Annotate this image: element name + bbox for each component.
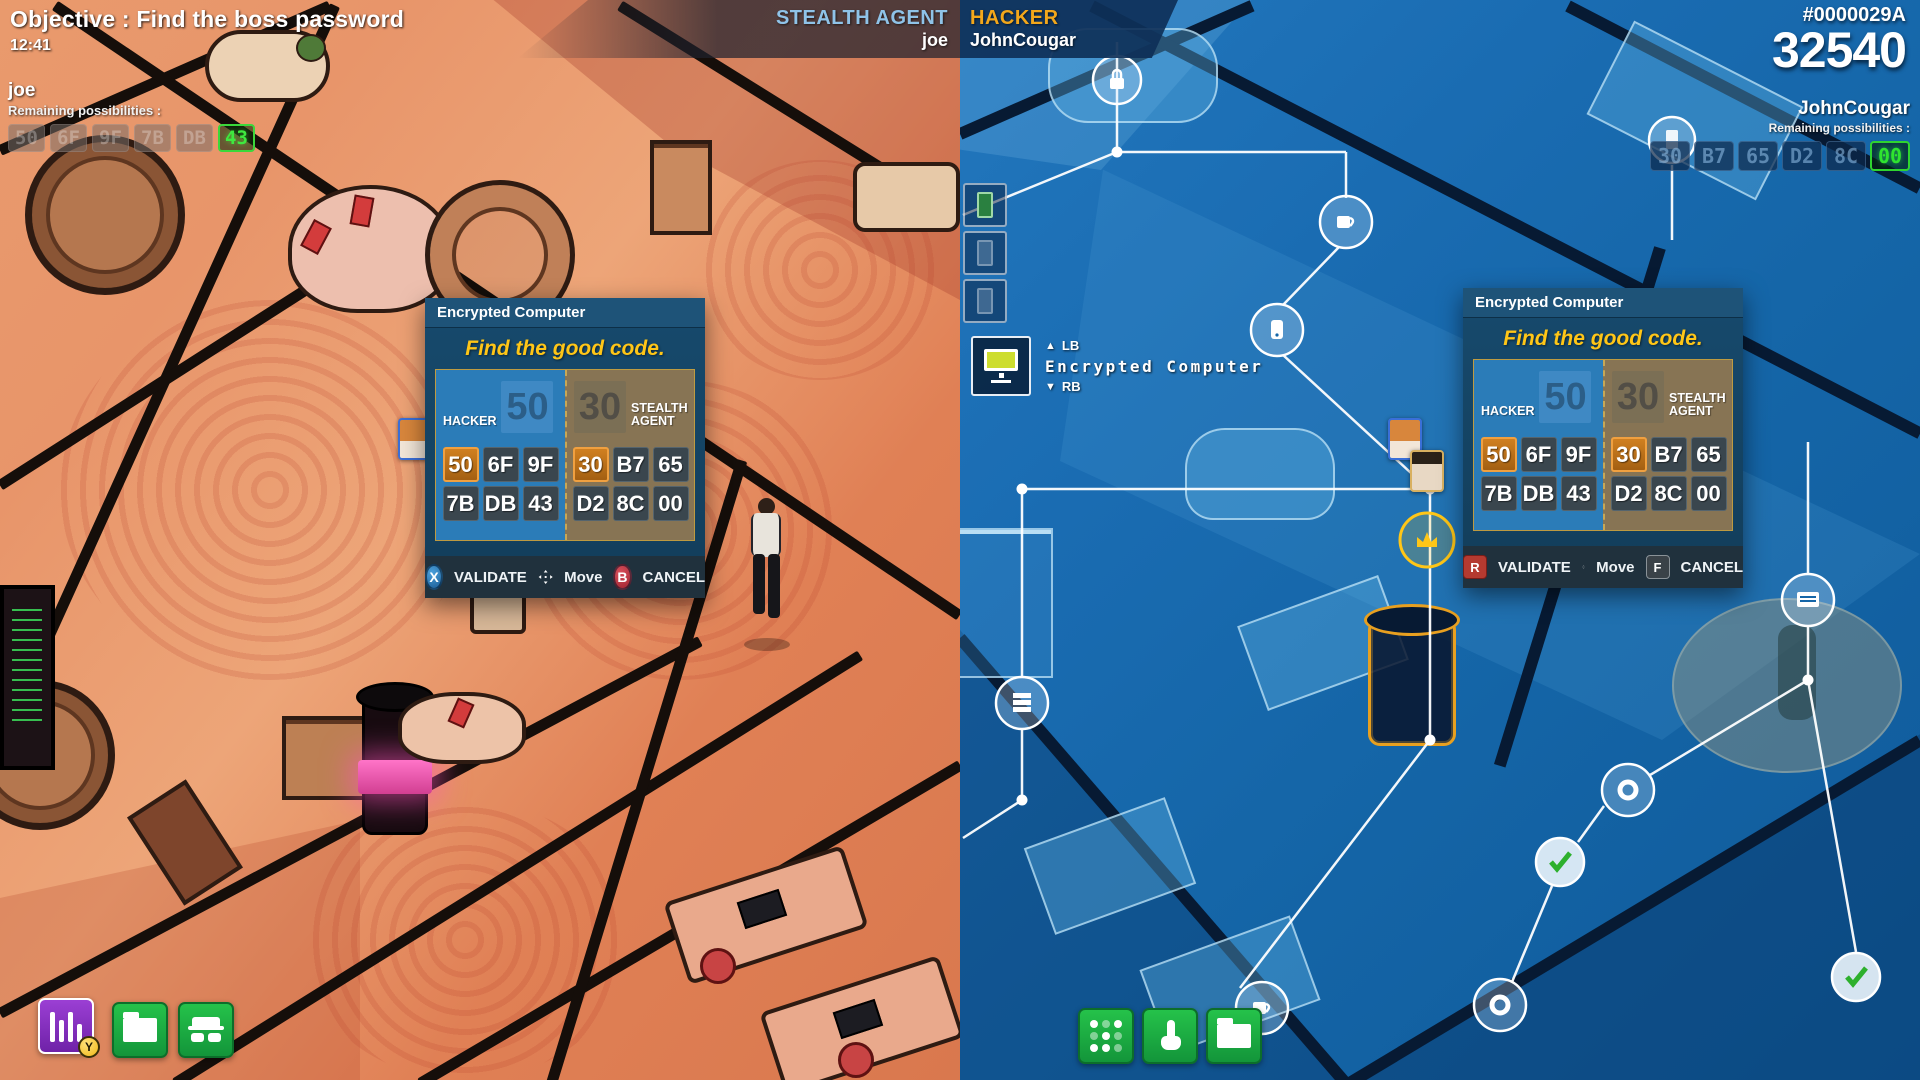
folder-icon xyxy=(1217,1024,1251,1048)
code-cell[interactable]: 6F xyxy=(483,447,519,482)
validate-button[interactable]: VALIDATE xyxy=(1498,559,1571,576)
hacker-selected-big: 50 xyxy=(501,381,553,433)
gadget-icon xyxy=(50,1010,82,1042)
desk xyxy=(853,162,960,232)
hacker-role-label: HACKER xyxy=(970,7,1059,30)
inventory-button[interactable] xyxy=(112,1002,168,1058)
code-box: 9F xyxy=(92,124,129,152)
code-cell[interactable]: 8C xyxy=(613,486,649,521)
node-lock[interactable] xyxy=(1093,56,1141,104)
keyboard-f-key-icon[interactable]: F xyxy=(1646,555,1670,579)
stealth-column-label: STEALTH AGENT xyxy=(631,402,687,434)
agent-disguise-icon xyxy=(188,1017,224,1043)
code-cell[interactable]: DB xyxy=(1521,476,1557,511)
code-cell-selected[interactable]: 30 xyxy=(573,447,609,482)
computer-icon[interactable] xyxy=(971,336,1031,396)
dpad-move-icon xyxy=(538,565,553,589)
code-cell[interactable]: 00 xyxy=(653,486,689,521)
dialog-title: Encrypted Computer xyxy=(425,298,705,328)
code-cell-selected[interactable]: 50 xyxy=(443,447,479,482)
node-documents[interactable] xyxy=(996,677,1048,729)
code-box: D2 xyxy=(1782,141,1822,171)
rb-key-label: RB xyxy=(1062,379,1081,394)
agent-hud-label: Remaining possibilities : xyxy=(8,103,255,118)
dpad-move-icon xyxy=(1582,555,1585,579)
pattern-tool-button[interactable] xyxy=(1078,1008,1134,1064)
device-slot[interactable] xyxy=(963,183,1007,227)
arrow-down-icon: ▼ xyxy=(1045,381,1056,393)
code-cell[interactable]: 9F xyxy=(523,447,559,482)
hacker-banner: HACKER JohnCougar xyxy=(960,0,1178,58)
dialog-subtitle: Find the good code. xyxy=(1463,318,1743,359)
dialog-button-bar: X VALIDATE Move B CANCEL xyxy=(425,556,705,598)
agent-hud-name: joe xyxy=(8,80,255,102)
code-cell[interactable]: 65 xyxy=(1691,437,1727,472)
encrypted-computer-dialog-hacker: Encrypted Computer Find the good code. H… xyxy=(1463,288,1743,588)
move-label: Move xyxy=(1596,559,1634,576)
dialog-title: Encrypted Computer xyxy=(1463,288,1743,318)
code-cell[interactable]: 7B xyxy=(443,486,479,521)
hacker-player-name: JohnCougar xyxy=(970,30,1076,51)
game-screen: ▲ LB Encrypted Computer ▼ RB Objective :… xyxy=(0,0,1920,1080)
stealth-code-column: 30 STEALTH AGENT 30 B7 65 D2 8C 00 xyxy=(565,370,694,540)
rug xyxy=(60,300,480,680)
code-cell-selected[interactable]: 50 xyxy=(1481,437,1517,472)
touch-icon xyxy=(1157,1020,1183,1052)
code-cell[interactable]: B7 xyxy=(613,447,649,482)
timer: 12:41 xyxy=(10,37,51,55)
solved-code-box: 00 xyxy=(1870,141,1910,171)
prev-device-prompt[interactable]: ▲ LB xyxy=(1045,338,1263,353)
code-box: 6F xyxy=(50,124,87,152)
arrow-up-icon: ▲ xyxy=(1045,340,1056,352)
keyboard-r-key-icon[interactable]: R xyxy=(1463,555,1487,579)
code-cell[interactable]: 43 xyxy=(523,486,559,521)
node-encrypted-computer[interactable] xyxy=(1400,513,1454,567)
hacker-selected-big: 50 xyxy=(1539,371,1591,423)
hacker-hud-name: JohnCougar xyxy=(1650,98,1910,120)
hacker-remaining-panel: JohnCougar Remaining possibilities : 30 … xyxy=(1650,98,1910,171)
code-panel: HACKER 50 50 6F 9F 7B DB 43 30 STEALTH A… xyxy=(1473,359,1733,531)
score-value: 32540 xyxy=(1772,27,1906,75)
code-cell[interactable]: B7 xyxy=(1651,437,1687,472)
interact-tool-button[interactable] xyxy=(1142,1008,1198,1064)
stealth-player-name: joe xyxy=(922,30,948,51)
agent-ability-button[interactable] xyxy=(178,1002,234,1058)
objective-text: Objective : Find the boss password xyxy=(10,6,404,33)
code-cell[interactable]: 00 xyxy=(1691,476,1727,511)
gadget-button[interactable]: Y xyxy=(38,998,94,1054)
code-cell[interactable]: 8C xyxy=(1651,476,1687,511)
chair xyxy=(700,948,736,984)
stealth-selected-big: 30 xyxy=(1612,371,1664,423)
score-block: #0000029A 32540 xyxy=(1772,4,1906,75)
code-cell[interactable]: 65 xyxy=(653,447,689,482)
server-cabinet xyxy=(0,585,55,770)
code-cell[interactable]: 7B xyxy=(1481,476,1517,511)
code-cell[interactable]: 6F xyxy=(1521,437,1557,472)
stealth-column-label: STEALTH AGENT xyxy=(1669,392,1725,424)
boss-character xyxy=(742,498,792,648)
device-slot[interactable] xyxy=(963,231,1007,275)
code-box: 8C xyxy=(1826,141,1866,171)
rug xyxy=(300,800,630,1080)
plant xyxy=(296,34,326,62)
code-box: 7B xyxy=(134,124,171,152)
node-checked[interactable] xyxy=(1536,838,1584,886)
node-checked[interactable] xyxy=(1832,953,1880,1001)
agent-remaining-panel: joe Remaining possibilities : 50 6F 9F 7… xyxy=(8,80,255,152)
files-tool-button[interactable] xyxy=(1206,1008,1262,1064)
device-slot[interactable] xyxy=(963,279,1007,323)
desk xyxy=(663,845,868,985)
node-keyboard[interactable] xyxy=(1782,574,1834,626)
hacker-hud-label: Remaining possibilities : xyxy=(1650,121,1910,135)
folder-icon xyxy=(123,1018,157,1042)
gamepad-y-badge: Y xyxy=(78,1036,100,1058)
code-cell[interactable]: D2 xyxy=(573,486,609,521)
agent-position-avatar xyxy=(1410,450,1444,492)
gamepad-b-icon[interactable]: B xyxy=(613,564,631,590)
hacker-code-column: HACKER 50 50 6F 9F 7B DB 43 xyxy=(1474,360,1603,530)
stealth-banner: STEALTH AGENT joe xyxy=(518,0,960,58)
stealth-code-column: 30 STEALTH AGENT 30 B7 65 D2 8C 00 xyxy=(1603,360,1732,530)
code-cell[interactable]: 43 xyxy=(1561,476,1597,511)
code-box: DB xyxy=(176,124,213,152)
node-coffee[interactable] xyxy=(1320,196,1372,248)
validate-button[interactable]: VALIDATE xyxy=(454,569,527,586)
code-cell[interactable]: D2 xyxy=(1611,476,1647,511)
code-box: 30 xyxy=(1650,141,1690,171)
node-donut[interactable] xyxy=(1602,764,1654,816)
stealth-role-label: STEALTH AGENT xyxy=(776,7,948,30)
code-box: 50 xyxy=(8,124,45,152)
round-bookshelf xyxy=(25,135,185,295)
lb-key-label: LB xyxy=(1062,338,1079,353)
hacker-column-label: HACKER xyxy=(443,415,496,433)
hacker-column-label: HACKER xyxy=(1481,405,1534,423)
stealth-selected-big: 30 xyxy=(574,381,626,433)
dialog-button-bar: R VALIDATE Move F CANCEL xyxy=(1463,546,1743,588)
code-box: B7 xyxy=(1694,141,1734,171)
cancel-button[interactable]: CANCEL xyxy=(643,569,706,586)
dots-grid-icon xyxy=(1090,1020,1122,1052)
gamepad-x-icon[interactable]: X xyxy=(425,564,443,590)
device-name: Encrypted Computer xyxy=(1045,357,1263,376)
solved-code-box: 43 xyxy=(218,124,255,152)
code-cell-selected[interactable]: 30 xyxy=(1611,437,1647,472)
device-tooltip: ▲ LB Encrypted Computer ▼ RB xyxy=(971,336,1263,396)
shelf xyxy=(650,140,712,235)
next-device-prompt[interactable]: ▼ RB xyxy=(1045,379,1263,394)
cancel-button[interactable]: CANCEL xyxy=(1681,559,1744,576)
code-cell[interactable]: 9F xyxy=(1561,437,1597,472)
move-label: Move xyxy=(564,569,602,586)
code-panel: HACKER 50 50 6F 9F 7B DB 43 30 STEALTH A… xyxy=(435,369,695,541)
encrypted-computer-dialog-agent: Encrypted Computer Find the good code. H… xyxy=(425,298,705,598)
code-box: 65 xyxy=(1738,141,1778,171)
server-screen xyxy=(12,609,42,729)
code-cell[interactable]: DB xyxy=(483,486,519,521)
dialog-subtitle: Find the good code. xyxy=(425,328,705,369)
node-donut[interactable] xyxy=(1474,979,1526,1031)
hacker-code-column: HACKER 50 50 6F 9F 7B DB 43 xyxy=(436,370,565,540)
kiosk-glow xyxy=(358,760,432,794)
chair xyxy=(838,1042,874,1078)
